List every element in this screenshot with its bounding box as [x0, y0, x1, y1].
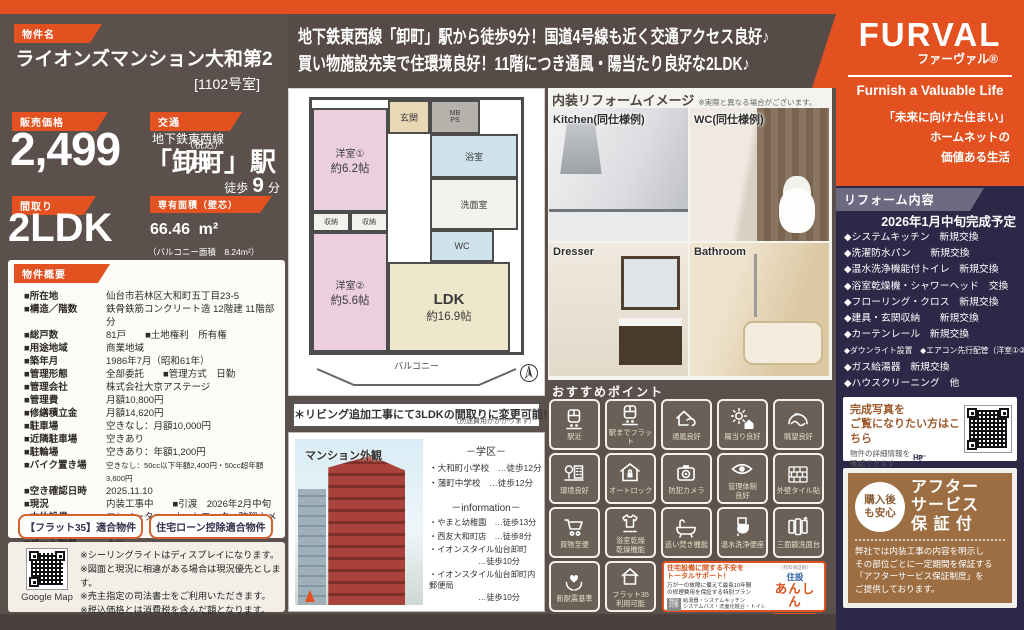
property-name: ライオンズマンション大和第2	[4, 44, 284, 71]
school-district-info: －学区－ ・大和町小学校 …徒歩12分 ・蒲町中学校 …徒歩12分 －infor…	[429, 441, 543, 605]
train-flat-icon	[618, 403, 643, 428]
balcony-outline	[309, 367, 524, 389]
anshin-support-logo: （有料保証制） 住設 あんしん サポート	[769, 565, 821, 608]
property-name-label: 物件名	[22, 30, 55, 41]
interior-panel: 内装リフォームイメージ※実際と異なる場合がございます。 Kitchen(同仕様例…	[548, 88, 832, 380]
point-tile: 陽当り良好	[717, 399, 768, 450]
google-map-qr-code	[26, 548, 68, 590]
point-tile: 環境良好	[549, 453, 600, 504]
school-header: －学区－	[429, 443, 543, 458]
after-service-body: 弊社では内装工事の内容を明示し その部位ごとに一定期間を保証する 「アフターサー…	[855, 545, 1005, 595]
building-photo: マンション外観	[295, 439, 423, 605]
table-row: ■現況内装工事中 ■引渡 2026年2月中旬	[24, 498, 280, 511]
support-heading: 住宅設備に関する不安を トータルサポート！	[667, 565, 767, 582]
property-room-no: [1102号室]	[40, 74, 260, 94]
interior-title: 内装リフォームイメージ	[552, 93, 694, 108]
shopping-cart-icon	[562, 515, 587, 540]
after-service-box: 購入後 も安心 アフター サービス 保 証 付 弊社では内装工事の内容を明示し …	[843, 468, 1017, 608]
closet: 収納	[312, 212, 350, 232]
disclaimer-notes: ※シーリングライトはディスプレイになります。 ※図面と現況に相違がある場合は現況…	[80, 549, 282, 618]
table-row: ■築年月1986年7月（昭和61年）	[24, 355, 280, 368]
point-tile: 外壁タイル貼	[773, 453, 824, 504]
layout-value: 2LDK	[8, 206, 112, 251]
reform-column: リフォーム内容 2026年1月中旬完成予定 ◆システムキッチン 新規交換 ◆洗濯…	[836, 186, 1024, 630]
access-ribbon: 交通	[150, 112, 242, 131]
info-item: ・イオンスタイル仙台卸町内郵便局 …徒歩10分	[429, 569, 543, 603]
property-name-ribbon: 物件名	[14, 24, 102, 43]
train-icon	[562, 407, 587, 432]
photo-qr-line1: 完成写真を	[850, 403, 966, 417]
ventilation-icon	[674, 407, 699, 432]
room-entrance: 玄関	[388, 100, 430, 134]
room-washroom: 洗面室	[430, 178, 518, 230]
area-note: （バルコニー面積 8.24m²）	[148, 246, 259, 258]
overview-table: ■所在地仙台市若林区大和町五丁目23-5 ■構造／階数鉄骨鉄筋コンクリート造 1…	[24, 290, 280, 550]
brand-slogan: 「未来に向けた住まい」 ホームネットの 価値ある生活	[836, 108, 1024, 168]
reform-item: ◆システムキッチン 新規交換	[844, 230, 1020, 246]
access-walk: 徒歩9分	[150, 174, 280, 198]
map-notes-panel: Google Map ※シーリングライトはディスプレイになります。 ※図面と現況…	[8, 542, 285, 612]
info-item: ・イオンスタイル仙台卸町 …徒歩10分	[429, 544, 543, 567]
washlet-icon	[730, 515, 755, 540]
point-tile: 駅までフラット	[605, 399, 656, 450]
loan-deduction-badge: 住宅ローン控除適合物件	[149, 514, 273, 539]
after-service-title: アフター サービス 保 証 付	[911, 479, 979, 534]
sunlight-icon	[730, 407, 755, 432]
overview-panel: 物件概要 ■所在地仙台市若林区大和町五丁目23-5 ■構造／階数鉄骨鉄筋コンクリ…	[8, 260, 285, 538]
reform-completion: 2026年1月中旬完成予定	[844, 211, 1016, 230]
walk-label: 徒歩	[224, 181, 248, 195]
table-row: ■管理費月額10,800円	[24, 394, 280, 407]
reform-item: ◆ダウンライト設置 ◆エアコン先行配管（洋室①②）	[844, 343, 1020, 359]
bath-dryer-icon	[618, 511, 643, 536]
point-tile: 新耐震基準	[549, 561, 600, 612]
reform-item: ◆ガス給湯器 新規交換	[844, 360, 1020, 376]
room-bath: 浴室	[430, 134, 518, 178]
info-item: ・西友大和町店 …徒歩8分	[429, 531, 543, 542]
access-label: 交通	[158, 118, 180, 129]
hand-hp-icon: ☞HP	[912, 450, 927, 467]
point-tile: 駅近	[549, 399, 600, 450]
table-row: ■所在地仙台市若林区大和町五丁目23-5	[24, 290, 280, 303]
photo-qr-sub: 物件の詳細情報を 確認できます	[850, 449, 910, 469]
catch-line-2: 買い物施設充実で住環境良好！11階につき通風・陽当たり良好な2LDK♪	[298, 51, 710, 78]
photo-bathroom: Bathroom	[690, 243, 829, 376]
brand-tagline: Furnish a Valuable Life	[836, 83, 1024, 98]
triple-mirror-icon	[786, 515, 811, 540]
room-bedroom1: 洋室①約6.2帖	[312, 108, 388, 212]
support-body: 万が一の故障に備えて最長10年間 の修理費用を保証する特別プラン	[667, 583, 767, 597]
room-wc: WC	[430, 230, 494, 262]
flyer-page: 物件名 ライオンズマンション大和第2 [1102号室] 地下鉄東西線「卸町」駅か…	[0, 0, 1024, 630]
reform-item: ◆カーテンレール 新規交換	[844, 327, 1020, 343]
photo-dresser: Dresser	[549, 243, 688, 376]
reform-item: ◆建具・玄関収納 新規交換	[844, 311, 1020, 327]
autolock-icon	[618, 461, 643, 486]
point-tile: 管理体制 良好	[717, 453, 768, 504]
room-bedroom2: 洋室②約5.6帖	[312, 232, 388, 352]
info-item: ・やまと幼稚園 …徒歩13分	[429, 517, 543, 528]
point-tile: フラット35 利用可能	[605, 561, 656, 612]
after-service-circle: 購入後 も安心	[855, 482, 905, 532]
interior-heading: 内装リフォームイメージ※実際と異なる場合がございます。	[552, 90, 816, 109]
reform-item: ◆浴室乾燥機・シャワーヘッド 交換	[844, 279, 1020, 295]
view-icon	[786, 407, 811, 432]
bathtub-icon	[674, 515, 699, 540]
point-tile: 通風良好	[661, 399, 712, 450]
exterior-panel: マンション外観 －学区－ ・大和町小学校 …徒歩12分 ・蒲町中学校 …徒歩12…	[288, 432, 545, 612]
brand-block: FURVAL ファーヴァル® Furnish a Valuable Life 「…	[836, 0, 1024, 186]
reform-heading: リフォーム内容	[836, 188, 984, 211]
flat35-badge: 【フラット35】適合物件	[18, 514, 143, 539]
table-row: ■修繕積立金月額14,620円	[24, 407, 280, 420]
point-tile: 追い焚き機能	[661, 507, 712, 558]
support-target-label: 保証 対象	[667, 598, 681, 611]
photo-kitchen: Kitchen(同仕様例)	[549, 108, 688, 241]
table-row: ■管理会社株式会社大京アステージ	[24, 381, 280, 394]
school-item: ・大和町小学校 …徒歩12分	[429, 461, 543, 476]
point-tile: 防犯カメラ	[661, 453, 712, 504]
overview-title: 物件概要	[22, 270, 66, 281]
point-tile: 三面鏡洗面台	[773, 507, 824, 558]
anshin-support-box: 住宅設備に関する不安を トータルサポート！ 万が一の故障に備えて最長10年間 の…	[662, 561, 826, 612]
table-row: ■駐輪場空きあり：年額1,200円	[24, 446, 280, 459]
exterior-caption: マンション外観	[305, 447, 382, 463]
brand-divider	[848, 75, 1012, 77]
mansion-building	[328, 456, 405, 605]
earthquake-standard-icon	[562, 569, 587, 594]
table-row: ■管理形態全部委託 ■管理方式 日勤	[24, 368, 280, 381]
environment-icon	[562, 461, 587, 486]
google-map-label: Google Map	[14, 592, 80, 603]
reform-item: ◆ハウスクリーニング 他	[844, 376, 1020, 392]
top-accent-bar	[0, 0, 836, 14]
certification-badges: 【フラット35】適合物件 住宅ローン控除適合物件	[18, 514, 273, 539]
property-detail-qr-code	[964, 405, 1012, 453]
floorplan-panel: 玄関 MB PS 浴室 洗面室 WC 洋室①約6.2帖 収納 収納 洋室②約5.…	[288, 88, 545, 396]
room-ldk: LDK約16.9帖	[388, 262, 510, 352]
photo-qr-line2: ご覧になりたい方はこちら	[850, 417, 966, 446]
school-item: ・蒲町中学校 …徒歩12分	[429, 476, 543, 491]
reform-list: ◆システムキッチン 新規交換 ◆洗濯防水パン 新規交換 ◆温水洗浄機能付トイレ …	[844, 230, 1020, 392]
table-row: ■構造／階数鉄骨鉄筋コンクリート造 12階建 11階部分	[24, 303, 280, 329]
dotted-divider	[855, 539, 1005, 541]
area-unit: m²	[199, 221, 219, 238]
room-mbps: MB PS	[430, 100, 480, 134]
price-value: 2,499	[10, 122, 120, 176]
catch-line-1: 地下鉄東西線「卸町」駅から徒歩9分！国道4号線も近く交通アクセス良好♪	[298, 24, 710, 51]
flat35-house-icon	[618, 565, 643, 590]
point-tile: 浴室乾燥 乾燥機能	[605, 507, 656, 558]
catch-copy-panel: 地下鉄東西線「卸町」駅から徒歩9分！国道4号線も近く交通アクセス良好♪ 買い物施…	[288, 14, 836, 88]
table-row: ■近隣駐車場空きあり	[24, 433, 280, 446]
interior-disclaimer: ※実際と異なる場合がございます。	[698, 98, 816, 107]
tile-wall-icon	[786, 461, 811, 486]
table-row: ■用途地域商業地域	[24, 342, 280, 355]
compass-icon	[519, 363, 539, 383]
floorplan-note: ＊リビング追加工事にて3LDKの間取りに変更可能！ （別途費用がかかります）	[292, 402, 541, 428]
neighbor-building	[298, 489, 326, 605]
support-target-text: 給湯器・システムキッチン システムバス・洗面化粧台・トイレ	[683, 598, 766, 610]
reform-item: ◆洗濯防水パン 新規交換	[844, 246, 1020, 262]
reform-item: ◆温水洗浄機能付トイレ 新規交換	[844, 262, 1020, 278]
table-row: ■総戸数81戸 ■土地権利 所有権	[24, 329, 280, 342]
closet: 収納	[350, 212, 388, 232]
management-eye-icon	[730, 457, 755, 482]
floorplan-drawing: 玄関 MB PS 浴室 洗面室 WC 洋室①約6.2帖 収納 収納 洋室②約5.…	[309, 97, 524, 355]
point-tile: 買物至便	[549, 507, 600, 558]
area-value: 66.46 m²	[150, 206, 218, 242]
completion-photo-qr-box: 完成写真を ご覧になりたい方はこちら 物件の詳細情報を 確認できます ☞HP	[843, 397, 1017, 461]
furval-logo: FURVAL	[836, 16, 1024, 54]
information-header: －information－	[429, 499, 543, 514]
floorplan-note-sub: （別途費用がかかります）	[452, 416, 536, 426]
point-tile: 温水洗浄便座	[717, 507, 768, 558]
points-heading: おすすめポイント	[552, 383, 664, 400]
point-tile: 眺望良好	[773, 399, 824, 450]
footer-bar	[0, 614, 836, 630]
point-tile: オートロック	[605, 453, 656, 504]
dresser-cabinet	[619, 318, 683, 366]
walk-unit: 分	[268, 181, 280, 195]
area-number: 66.46	[150, 221, 190, 238]
reform-item: ◆フローリング・クロス 新規交換	[844, 295, 1020, 311]
photo-wc: WC(同仕様例)	[690, 108, 829, 241]
traffic-cone	[305, 590, 315, 602]
table-row: ■バイク置き場空きなし：50cc以下年額2,400円・50cc超年額3,600円	[24, 459, 280, 485]
table-row: ■空き確認日時2025.11.10	[24, 485, 280, 498]
table-row: ■駐車場空きなし：月額10,000円	[24, 420, 280, 433]
walk-minutes: 9	[248, 174, 268, 197]
overview-ribbon: 物件概要	[14, 264, 110, 283]
security-camera-icon	[674, 461, 699, 486]
